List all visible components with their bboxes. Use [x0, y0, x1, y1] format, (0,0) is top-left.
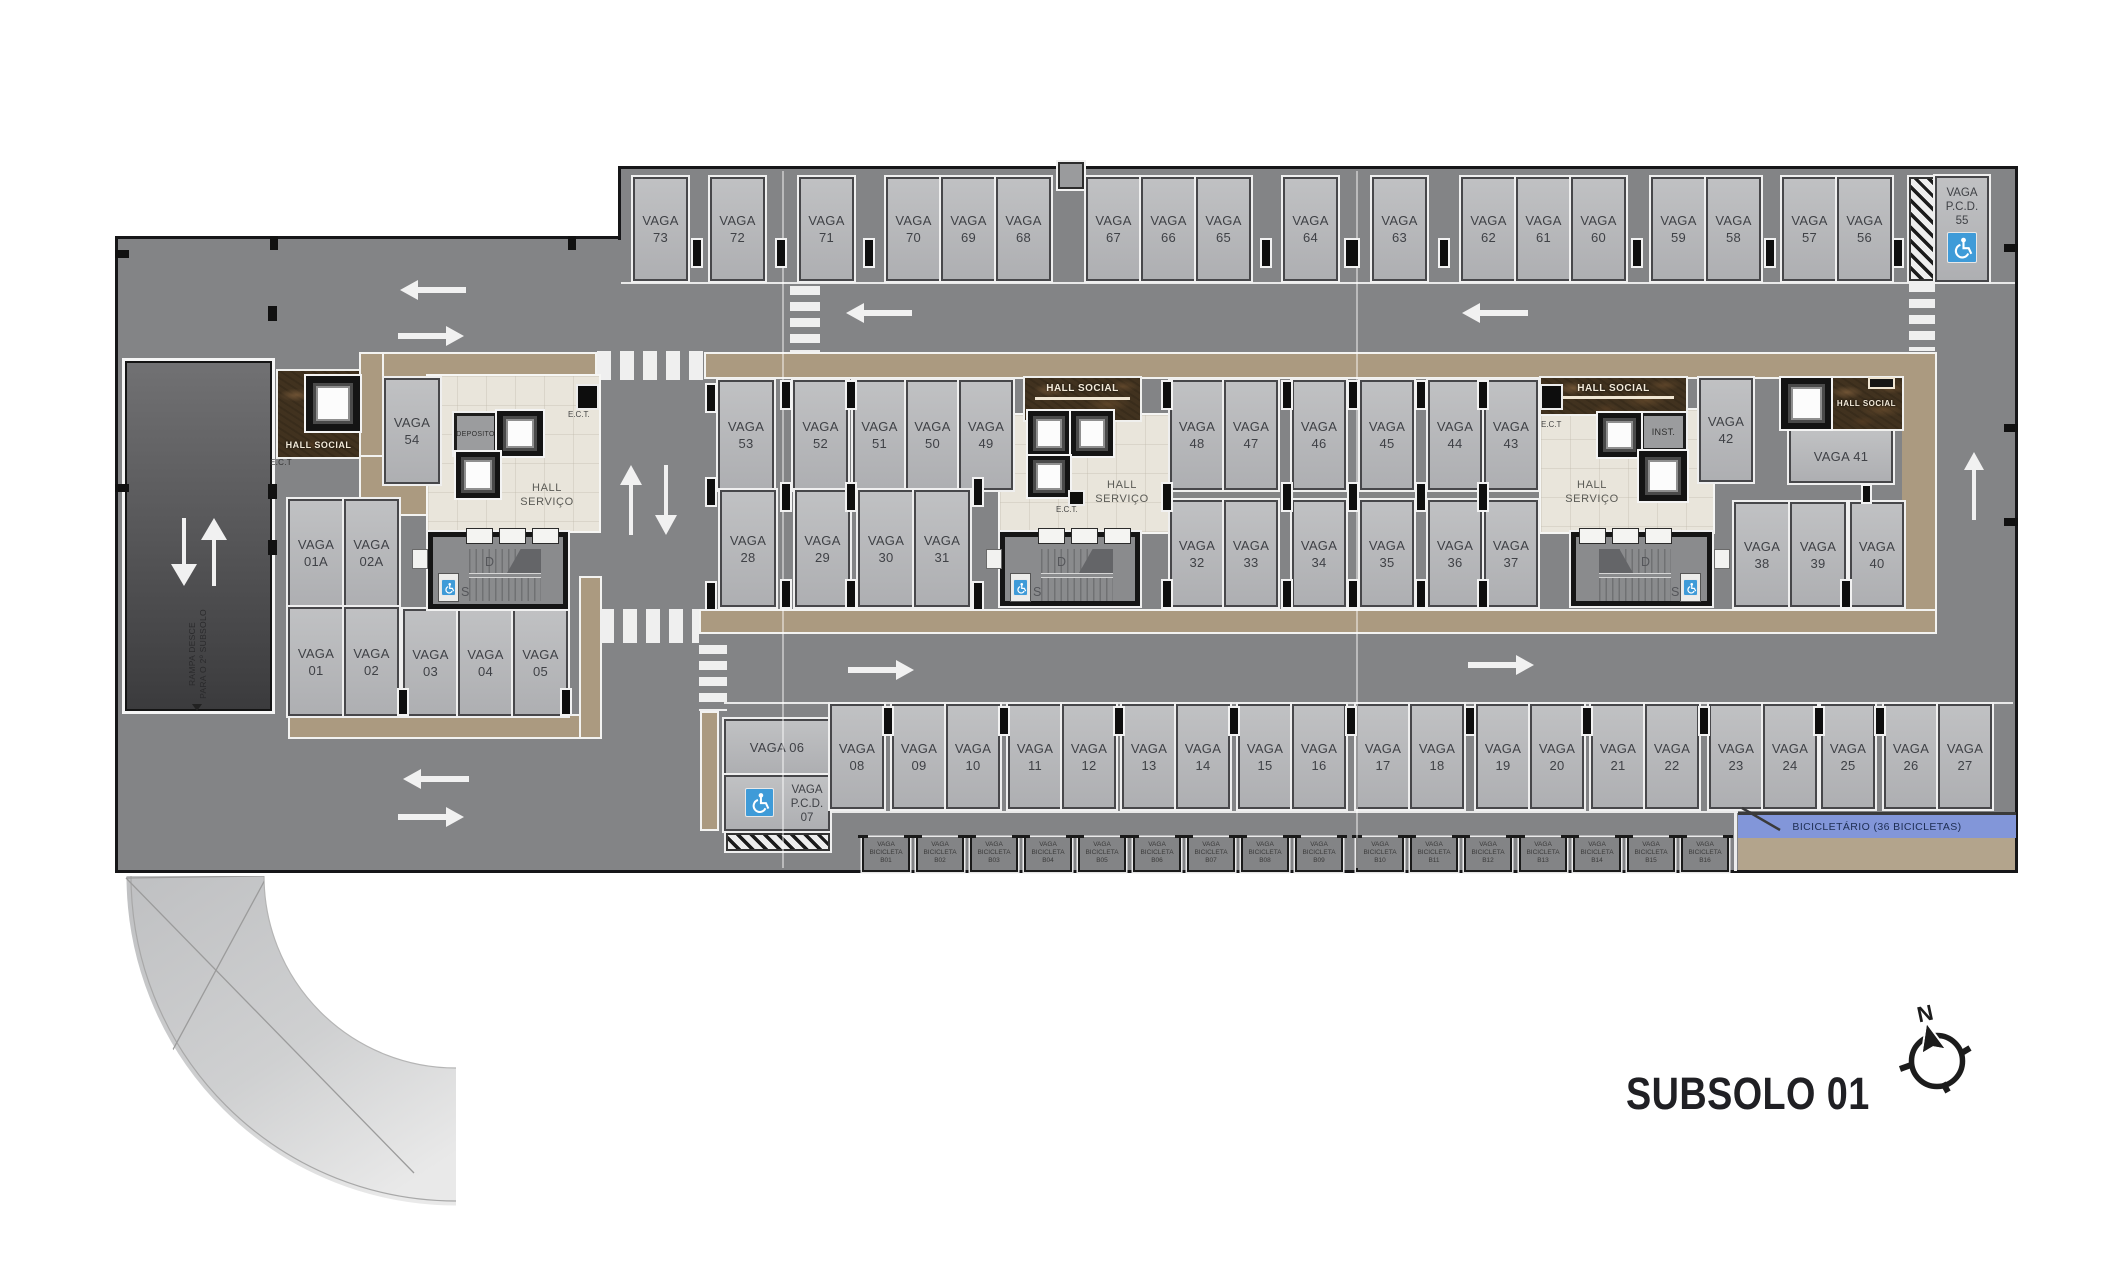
svg-text:N: N [1915, 1000, 1936, 1028]
